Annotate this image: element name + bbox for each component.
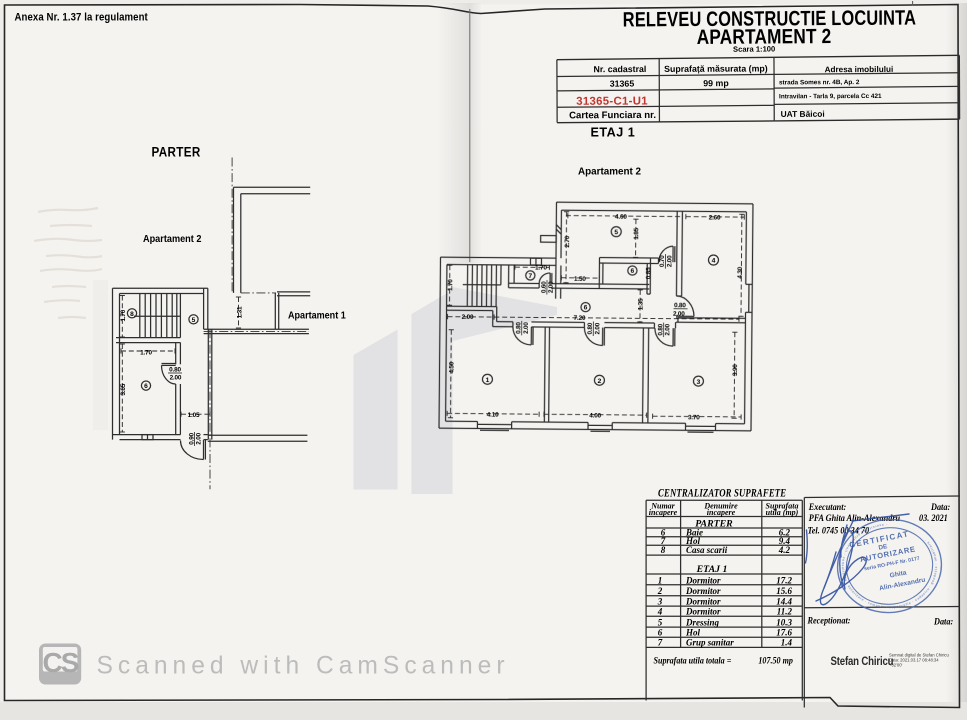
svg-text:1: 1 [658, 575, 663, 585]
svg-text:2.00: 2.00 [673, 311, 685, 318]
svg-text:Nr. cadastral: Nr. cadastral [593, 64, 646, 74]
svg-text:107.50 mp: 107.50 mp [758, 655, 793, 666]
svg-text:1.70: 1.70 [140, 349, 152, 356]
svg-text:2.00: 2.00 [665, 323, 672, 335]
svg-text:1.70: 1.70 [120, 309, 127, 321]
svg-text:1.50: 1.50 [574, 276, 586, 283]
svg-text:utila (mp): utila (mp) [766, 508, 799, 517]
svg-text:Anexa Nr. 1.37 la regulament: Anexa Nr. 1.37 la regulament [15, 12, 149, 24]
svg-text:Adresa imobilului: Adresa imobilului [825, 65, 894, 74]
svg-text:ETAJ 1: ETAJ 1 [591, 126, 636, 140]
svg-text:2.00: 2.00 [666, 255, 673, 267]
svg-text:7: 7 [528, 273, 532, 280]
svg-text:Dormitor: Dormitor [685, 586, 721, 596]
svg-text:PARTER: PARTER [152, 145, 201, 160]
svg-text:CS: CS [43, 647, 79, 678]
svg-text:+02'00': +02'00' [889, 663, 903, 668]
svg-text:4.00: 4.00 [589, 412, 601, 419]
svg-text:4: 4 [712, 258, 716, 265]
svg-text:1.35: 1.35 [638, 298, 645, 310]
svg-text:6: 6 [631, 268, 635, 275]
svg-text:Dormitor: Dormitor [685, 575, 721, 585]
svg-text:Receptionat:: Receptionat: [807, 615, 851, 626]
svg-text:8: 8 [661, 545, 666, 555]
svg-text:CENTRALIZATOR SUPRAFETE: CENTRALIZATOR SUPRAFETE [658, 488, 786, 500]
svg-text:ETAJ 1: ETAJ 1 [696, 564, 728, 575]
svg-text:2.00: 2.00 [462, 314, 474, 321]
svg-text:7: 7 [658, 638, 663, 648]
svg-text:7.20: 7.20 [574, 315, 586, 322]
svg-text:6: 6 [658, 627, 663, 637]
svg-text:4.30: 4.30 [737, 266, 744, 278]
svg-text:Casa scarii: Casa scarii [686, 545, 728, 555]
svg-text:31365-C1-U1: 31365-C1-U1 [576, 95, 648, 107]
svg-text:4.10: 4.10 [487, 411, 499, 418]
svg-text:UAT Băicoi: UAT Băicoi [781, 109, 825, 119]
svg-text:17.6: 17.6 [776, 627, 792, 637]
svg-text:1.70: 1.70 [447, 279, 454, 291]
svg-text:Apartament 1: Apartament 1 [288, 310, 346, 322]
svg-text:Dressing: Dressing [685, 617, 720, 627]
svg-text:3.65: 3.65 [120, 383, 127, 395]
svg-text:31365: 31365 [610, 79, 635, 89]
svg-text:6: 6 [584, 305, 588, 312]
svg-text:Data:: Data: [933, 616, 953, 627]
svg-text:2.00: 2.00 [170, 375, 182, 382]
svg-text:Hol: Hol [685, 627, 701, 637]
svg-text:Dormitor: Dormitor [685, 607, 721, 617]
svg-text:PFA Ghita Alin-Alexandru: PFA Ghita Alin-Alexandru [809, 512, 900, 523]
svg-text:5: 5 [658, 617, 663, 627]
svg-text:3.70: 3.70 [688, 414, 700, 421]
svg-text:1.4: 1.4 [781, 638, 793, 648]
svg-text:2.60: 2.60 [709, 215, 721, 222]
svg-text:incapere: incapere [707, 508, 736, 517]
svg-text:1.70: 1.70 [535, 264, 547, 271]
svg-text:0.80: 0.80 [674, 302, 686, 309]
svg-text:2.00: 2.00 [548, 281, 555, 293]
svg-text:14.4: 14.4 [776, 596, 792, 606]
svg-text:Intravilan - Tarla 9, parcela: Intravilan - Tarla 9, parcela Cc 421 [779, 93, 882, 100]
svg-text:Suprafață măsurata (mp): Suprafață măsurata (mp) [664, 63, 768, 73]
svg-text:0.85: 0.85 [645, 267, 652, 279]
svg-text:8: 8 [130, 311, 134, 318]
svg-text:6: 6 [144, 383, 148, 390]
svg-text:4.2: 4.2 [778, 545, 791, 555]
svg-text:5: 5 [614, 229, 618, 236]
svg-text:1.31: 1.31 [237, 306, 244, 318]
svg-text:1: 1 [486, 377, 490, 384]
svg-text:Apartament 2: Apartament 2 [578, 166, 641, 177]
svg-text:4.60: 4.60 [615, 214, 627, 221]
svg-text:Stefan Chiricu: Stefan Chiricu [831, 655, 894, 668]
svg-text:Dormitor: Dormitor [685, 596, 721, 606]
svg-text:Cartea Funciara nr.: Cartea Funciara nr. [569, 110, 656, 121]
svg-text:1.85: 1.85 [633, 227, 640, 239]
svg-text:3.90: 3.90 [732, 364, 739, 376]
svg-text:15.6: 15.6 [776, 586, 792, 596]
svg-text:Apartament 2: Apartament 2 [143, 234, 202, 246]
svg-text:2.70: 2.70 [564, 235, 571, 247]
svg-text:Data:: Data: [930, 501, 950, 512]
svg-text:10.3: 10.3 [776, 617, 792, 627]
svg-text:2.00: 2.00 [594, 322, 601, 334]
svg-text:5: 5 [192, 317, 196, 324]
svg-text:Scara 1:100: Scara 1:100 [733, 44, 775, 53]
svg-text:1.05: 1.05 [188, 412, 200, 419]
svg-text:Suprafata utila totala =: Suprafata utila totala = [654, 655, 732, 666]
svg-text:4: 4 [657, 607, 663, 617]
svg-text:2.00: 2.00 [196, 432, 203, 444]
svg-text:11.2: 11.2 [777, 607, 793, 617]
svg-text:3: 3 [696, 379, 700, 386]
svg-text:Executant:: Executant: [808, 501, 846, 512]
svg-text:2: 2 [597, 378, 601, 385]
svg-text:strada Somes nr. 4B, Ap. 2: strada Somes nr. 4B, Ap. 2 [779, 79, 860, 86]
svg-text:17.2: 17.2 [776, 575, 792, 585]
svg-text:Scanned with CamScanner: Scanned with CamScanner [97, 653, 510, 680]
svg-text:3: 3 [657, 596, 663, 606]
svg-text:4.50: 4.50 [448, 361, 455, 373]
svg-text:Grup sanitar: Grup sanitar [686, 638, 734, 648]
svg-text:99 mp: 99 mp [703, 78, 729, 88]
svg-text:incapere: incapere [649, 508, 678, 517]
svg-text:2: 2 [657, 586, 663, 596]
svg-text:2.00: 2.00 [523, 322, 530, 334]
svg-text:03. 2021: 03. 2021 [919, 512, 948, 523]
